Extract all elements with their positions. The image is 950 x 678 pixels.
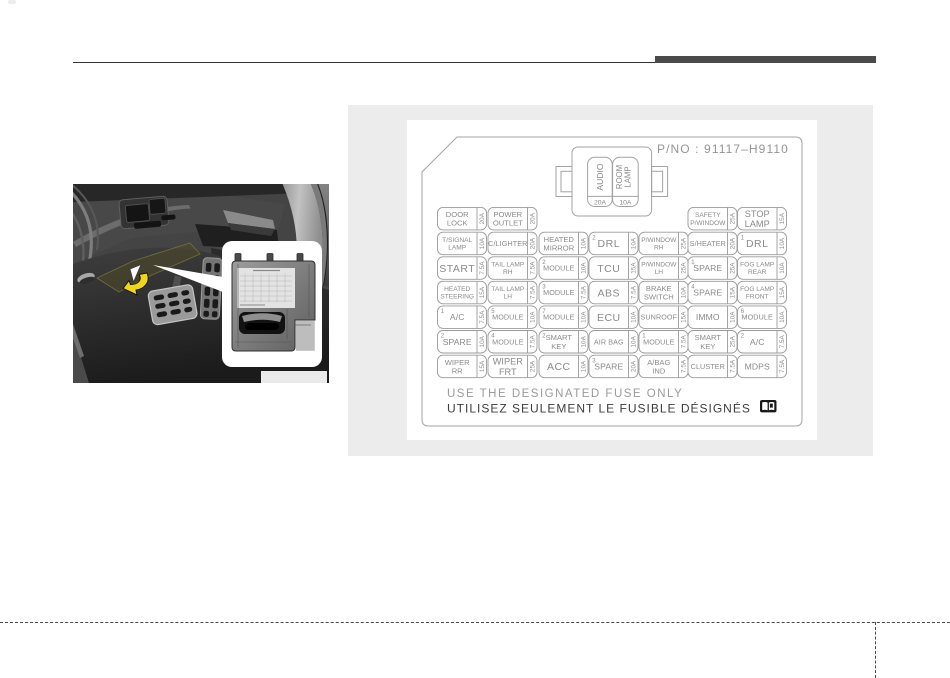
svg-text:10A: 10A xyxy=(779,262,786,274)
svg-text:DRL: DRL xyxy=(746,238,769,250)
svg-text:T/SIGNAL: T/SIGNAL xyxy=(442,237,472,244)
svg-text:7.5A: 7.5A xyxy=(479,261,486,275)
svg-text:7.5A: 7.5A xyxy=(580,285,587,299)
svg-text:FRT: FRT xyxy=(499,367,517,377)
svg-text:MIRROR: MIRROR xyxy=(543,244,574,253)
svg-text:MODULE: MODULE xyxy=(543,288,574,297)
svg-text:AIR BAG: AIR BAG xyxy=(594,337,624,346)
svg-text:15A: 15A xyxy=(479,360,486,372)
svg-text:20A: 20A xyxy=(729,237,736,249)
svg-text:ECU: ECU xyxy=(597,312,621,324)
svg-text:UTILISEZ SEULEMENT LE FUSIBLE: UTILISEZ SEULEMENT LE FUSIBLE DÉSIGNÉS xyxy=(447,401,751,416)
svg-text:CLUSTER: CLUSTER xyxy=(691,362,725,371)
svg-text:10A: 10A xyxy=(779,311,786,323)
svg-text:7.5A: 7.5A xyxy=(729,359,736,373)
svg-text:15A: 15A xyxy=(779,286,786,298)
svg-text:7.5A: 7.5A xyxy=(530,261,537,275)
svg-text:LAMP: LAMP xyxy=(745,219,770,229)
svg-text:20A: 20A xyxy=(630,360,637,372)
svg-text:TAIL LAMP: TAIL LAMP xyxy=(491,286,525,293)
svg-text:15A: 15A xyxy=(630,262,637,274)
svg-text:7.5A: 7.5A xyxy=(779,334,786,348)
svg-text:MODULE: MODULE xyxy=(643,337,674,346)
svg-text:10A: 10A xyxy=(580,311,587,323)
svg-text:10A: 10A xyxy=(479,237,486,249)
svg-text:LH: LH xyxy=(655,269,664,276)
svg-text:10A: 10A xyxy=(779,237,786,249)
svg-text:STOP: STOP xyxy=(745,209,770,219)
svg-text:10A: 10A xyxy=(580,335,587,347)
svg-text:FOG LAMP: FOG LAMP xyxy=(740,262,775,269)
svg-text:P/WINDOW: P/WINDOW xyxy=(641,237,677,244)
svg-text:P/WINDOW: P/WINDOW xyxy=(641,262,677,269)
svg-text:10A: 10A xyxy=(479,335,486,347)
svg-text:10A: 10A xyxy=(630,237,637,249)
svg-text:TAIL LAMP: TAIL LAMP xyxy=(491,262,525,269)
svg-text:LAMP: LAMP xyxy=(624,166,633,187)
svg-text:15A: 15A xyxy=(729,286,736,298)
svg-text:START: START xyxy=(439,263,475,275)
svg-text:10A: 10A xyxy=(580,360,587,372)
svg-text:LOCK: LOCK xyxy=(447,219,468,228)
svg-text:A/C: A/C xyxy=(450,312,465,322)
svg-text:10A: 10A xyxy=(530,311,537,323)
svg-text:10A: 10A xyxy=(619,200,632,207)
svg-text:HEATED: HEATED xyxy=(444,286,470,293)
svg-text:25A: 25A xyxy=(729,335,736,347)
svg-text:7.5A: 7.5A xyxy=(680,359,687,373)
svg-text:7.5A: 7.5A xyxy=(779,359,786,373)
svg-text:7.5A: 7.5A xyxy=(479,310,486,324)
svg-text:7.5A: 7.5A xyxy=(630,285,637,299)
svg-text:SUNROOF: SUNROOF xyxy=(640,313,677,322)
svg-text:SAFETY: SAFETY xyxy=(695,212,721,219)
svg-text:IMMO: IMMO xyxy=(696,312,720,322)
svg-text:7.5A: 7.5A xyxy=(530,334,537,348)
svg-text:MODULE: MODULE xyxy=(543,264,574,273)
svg-text:A/C: A/C xyxy=(750,337,765,347)
svg-text:20A: 20A xyxy=(530,237,537,249)
svg-text:P/WINDOW: P/WINDOW xyxy=(690,220,726,227)
svg-text:20A: 20A xyxy=(479,212,486,224)
svg-text:C/LIGHTER: C/LIGHTER xyxy=(488,239,527,248)
svg-text:SWITCH: SWITCH xyxy=(644,293,674,302)
svg-text:TCU: TCU xyxy=(597,263,620,275)
svg-text:SPARE: SPARE xyxy=(594,362,623,372)
svg-text:10A: 10A xyxy=(630,335,637,347)
svg-text:KEY: KEY xyxy=(700,342,715,351)
svg-text:MODULE: MODULE xyxy=(742,313,773,322)
svg-text:SPARE: SPARE xyxy=(693,263,722,273)
svg-text:ACC: ACC xyxy=(547,361,571,373)
svg-text:ABS: ABS xyxy=(598,287,621,299)
svg-text:REAR: REAR xyxy=(748,269,767,276)
svg-text:SPARE: SPARE xyxy=(693,288,722,298)
svg-text:25A: 25A xyxy=(729,262,736,274)
svg-text:MODULE: MODULE xyxy=(492,313,523,322)
svg-text:25A: 25A xyxy=(530,360,537,372)
svg-text:RR: RR xyxy=(452,367,463,376)
svg-text:S/HEATER: S/HEATER xyxy=(690,239,726,248)
svg-text:LAMP: LAMP xyxy=(448,245,467,252)
svg-text:25A: 25A xyxy=(729,212,736,224)
svg-text:20A: 20A xyxy=(594,200,607,207)
svg-text:WIPER: WIPER xyxy=(493,357,523,367)
svg-text:IND: IND xyxy=(652,367,666,376)
svg-text:10A: 10A xyxy=(630,311,637,323)
svg-text:RH: RH xyxy=(503,269,513,276)
svg-text:MODULE: MODULE xyxy=(543,313,574,322)
svg-text:FOG LAMP: FOG LAMP xyxy=(740,286,775,293)
svg-text:LH: LH xyxy=(504,294,513,301)
svg-text:OUTLET: OUTLET xyxy=(493,219,523,228)
svg-text:25A: 25A xyxy=(680,262,687,274)
svg-text:KEY: KEY xyxy=(551,342,566,351)
svg-text:25A: 25A xyxy=(680,237,687,249)
svg-text:STEERING: STEERING xyxy=(440,294,474,301)
svg-text:FRONT: FRONT xyxy=(746,294,769,301)
svg-text:10A: 10A xyxy=(680,286,687,298)
svg-text:MODULE: MODULE xyxy=(492,337,523,346)
svg-text:RH: RH xyxy=(654,245,664,252)
svg-text:10A: 10A xyxy=(580,262,587,274)
svg-text:MDPS: MDPS xyxy=(745,362,770,372)
svg-text:20A: 20A xyxy=(530,212,537,224)
svg-text:AUDIO: AUDIO xyxy=(595,163,605,191)
svg-text:15A: 15A xyxy=(680,311,687,323)
svg-text:SPARE: SPARE xyxy=(443,337,472,347)
svg-text:15A: 15A xyxy=(779,212,786,224)
svg-text:15A: 15A xyxy=(479,286,486,298)
svg-text:7.5A: 7.5A xyxy=(530,285,537,299)
svg-text:7.5A: 7.5A xyxy=(680,334,687,348)
svg-text:P/NO : 91117–H9110: P/NO : 91117–H9110 xyxy=(657,142,789,156)
svg-text:10A: 10A xyxy=(729,311,736,323)
svg-text:10A: 10A xyxy=(580,237,587,249)
svg-text:USE THE DESIGNATED FUSE ONLY: USE THE DESIGNATED FUSE ONLY xyxy=(447,388,683,400)
svg-text:DRL: DRL xyxy=(598,238,621,250)
